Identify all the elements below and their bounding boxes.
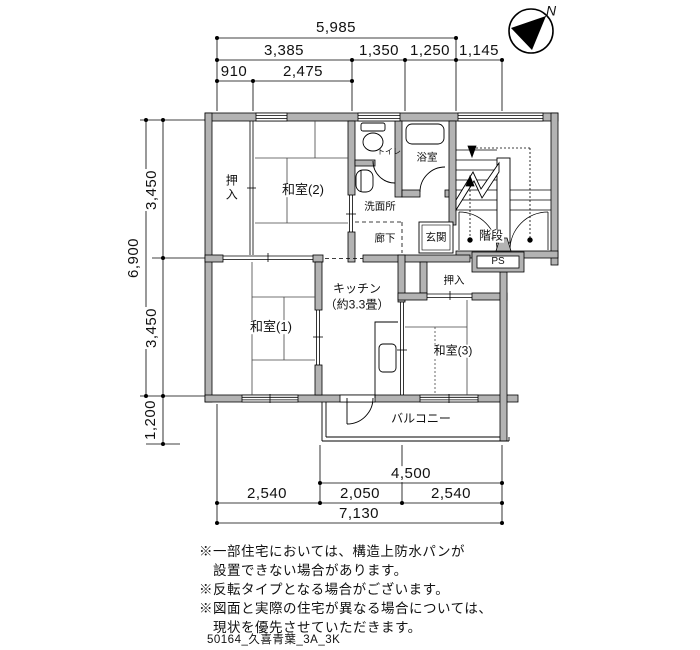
- label-washitsu1: 和室(1): [249, 320, 293, 334]
- wall-washroom-bath: [395, 121, 402, 197]
- note-line-4: ※図面と実際の住宅が異なる場合については、: [199, 597, 492, 617]
- label-kitchen-1: キッチン: [332, 283, 382, 296]
- dim-left-total: 6,900: [126, 237, 142, 279]
- entry-door-right: [510, 212, 548, 250]
- wall-toilet-bottom: [355, 160, 375, 166]
- dim-top-1250: 1,250: [409, 43, 451, 59]
- label-entrance: 玄関: [425, 232, 448, 243]
- dim-bottom-2050: 2,050: [339, 486, 381, 502]
- washbasin: [356, 170, 373, 192]
- note-line-2: 設置できない場合があります。: [199, 559, 408, 579]
- wall-washitsu2-east-upper: [348, 121, 355, 195]
- label-oshiire-lower: 押入: [443, 275, 466, 286]
- note-line-3: ※反転タイプとなる場合がございます。: [199, 578, 449, 598]
- bath-door: [420, 167, 445, 192]
- dim-top-3385: 3,385: [263, 43, 305, 59]
- wall-middle-b: [313, 255, 323, 262]
- label-hallway: 廊下: [374, 233, 397, 244]
- dim-left-1200: 1,200: [143, 399, 159, 441]
- bathtub: [406, 124, 444, 144]
- dim-top-1350: 1,350: [358, 43, 400, 59]
- wall-kitchen-west-a: [315, 262, 322, 310]
- stair-down-arrow: [468, 146, 476, 157]
- dim-left-3450b: 3,450: [144, 307, 160, 349]
- wall-middle-c: [363, 255, 470, 262]
- dim-top-910: 910: [220, 64, 249, 80]
- plan-id: 50164_久喜青葉_3A_3K: [207, 631, 340, 647]
- dim-top-2475: 2,475: [282, 64, 324, 80]
- balcony-door-opening: [340, 395, 375, 402]
- label-bathroom: 浴室: [416, 152, 439, 163]
- toilet-door: [373, 161, 395, 183]
- label-washroom: 洗面所: [363, 201, 397, 212]
- label-toilet: トイレ: [376, 148, 402, 156]
- wall-washitsu3-east: [500, 272, 507, 441]
- wall-stair-west: [449, 121, 456, 225]
- label-washitsu3: 和室(3): [433, 345, 474, 358]
- label-ps: PS: [490, 257, 505, 268]
- wall-kitchen-west-b: [315, 365, 322, 395]
- toilet-tank: [361, 123, 385, 131]
- dim-bottom-2540b: 2,540: [430, 486, 472, 502]
- dim-bottom-4500: 4,500: [390, 466, 432, 482]
- kitchen-sink: [379, 344, 396, 372]
- dim-top-1145: 1,145: [458, 43, 500, 59]
- wall-oshiire-lower-bottom-a: [398, 293, 427, 300]
- label-balcony: バルコニー: [390, 413, 452, 426]
- wall-right-stair: [551, 113, 558, 265]
- wall-oshiire-lower-west: [420, 262, 427, 293]
- wall-middle-a: [205, 255, 223, 262]
- label-washitsu2: 和室(2): [281, 183, 325, 197]
- compass-north-label: N: [545, 4, 557, 19]
- label-stairs: 階段: [478, 230, 504, 243]
- label-oshiire-upper: 押入: [224, 174, 239, 202]
- wall-bath-bottom-a: [402, 190, 420, 197]
- dim-top-total: 5,985: [315, 20, 357, 36]
- dim-bottom-2540a: 2,540: [246, 486, 288, 502]
- dim-left-3450a: 3,450: [144, 169, 160, 211]
- note-line-1: ※一部住宅においては、構造上防水パンが: [199, 540, 465, 560]
- floor-plan-page: 5,985 3,385 1,350 1,250 1,145 910 2,475 …: [0, 0, 700, 650]
- label-kitchen-2: （約3.3畳）: [324, 299, 391, 312]
- wall-washitsu2-east-lower: [348, 232, 355, 262]
- dim-bottom-total: 7,130: [338, 506, 380, 522]
